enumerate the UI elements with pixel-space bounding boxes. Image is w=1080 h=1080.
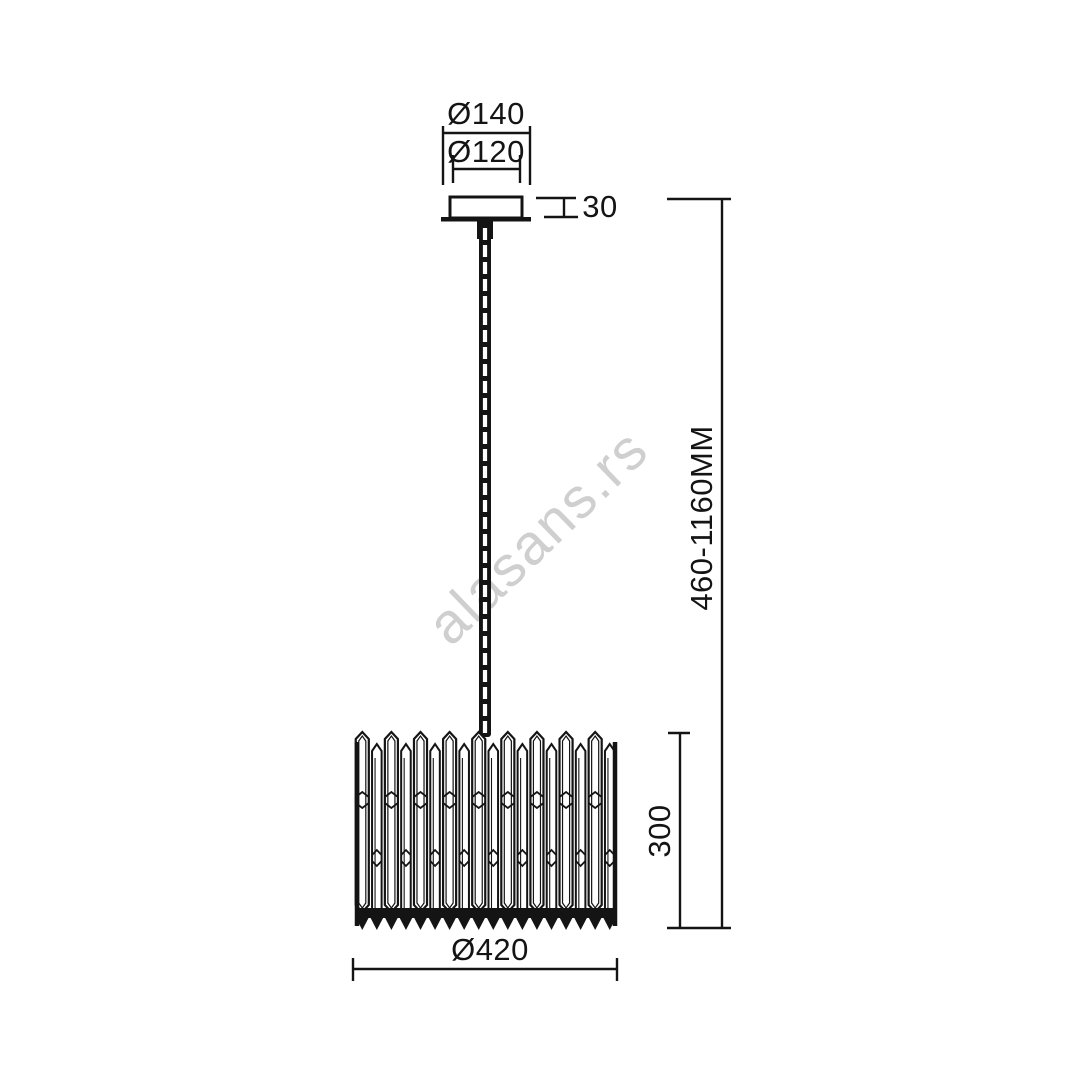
dim-canopy-height-lines — [536, 198, 578, 217]
canopy-outer-diameter-label: Ø140 — [447, 96, 525, 132]
canopy-inner-diameter-label: Ø120 — [447, 134, 525, 170]
shade-crystal-drum — [355, 732, 617, 930]
shade-diameter-label: Ø420 — [451, 932, 529, 968]
canopy-height-label: 30 — [582, 189, 617, 225]
chain — [479, 220, 491, 737]
shade-height-label: 300 — [642, 804, 678, 857]
diagram-canvas: alasans.rs — [0, 0, 1080, 1080]
lamp-line-drawing — [0, 0, 1080, 1080]
suspension-range-label: 460-1160MM — [684, 425, 720, 610]
